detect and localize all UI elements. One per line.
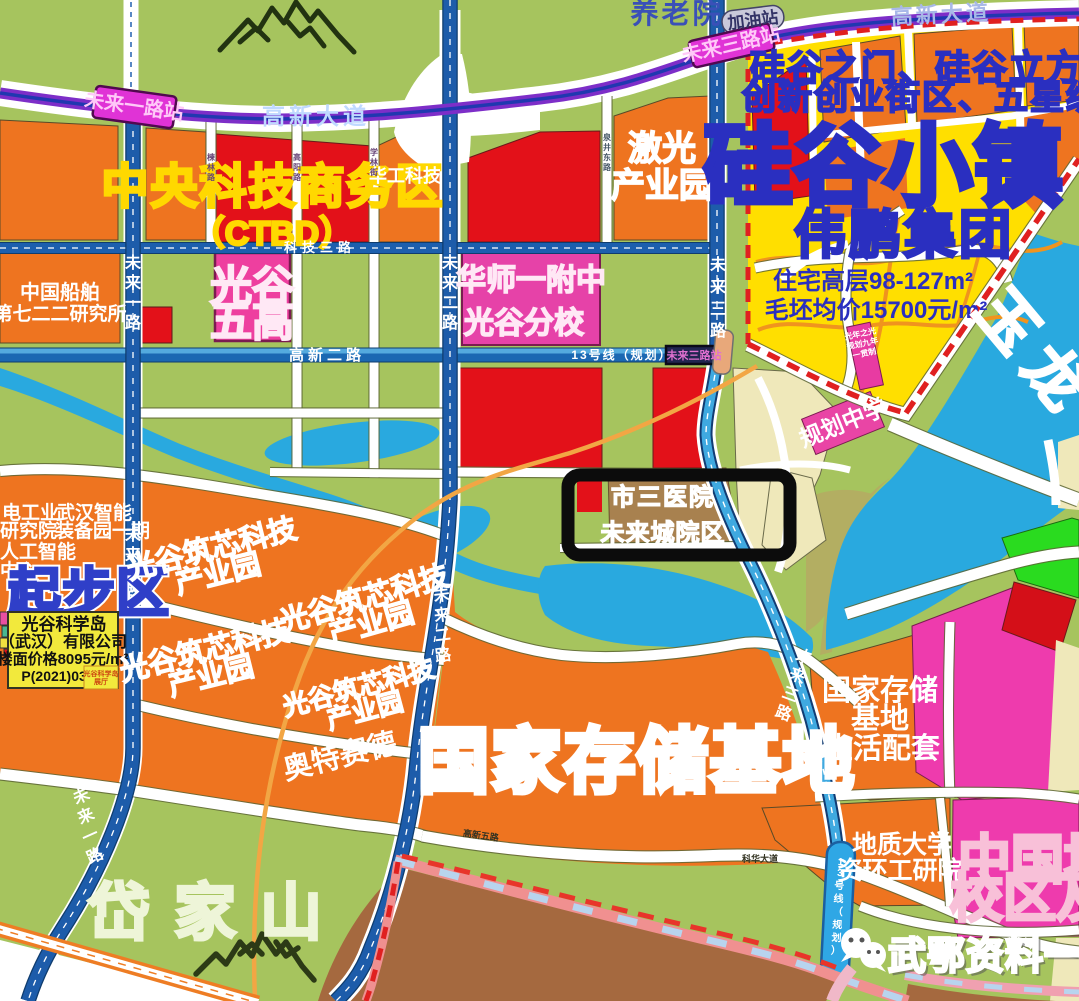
svg-text:市三医院: 市三医院 <box>611 483 715 511</box>
svg-text:路: 路 <box>603 162 612 172</box>
svg-text:高新大道: 高新大道 <box>890 0 991 30</box>
svg-text:阳: 阳 <box>293 163 301 172</box>
svg-text:东: 东 <box>603 152 611 162</box>
svg-text:高: 高 <box>293 152 301 162</box>
svg-text:校区及创: 校区及创 <box>950 869 1079 928</box>
svg-text:五高: 五高 <box>210 298 294 345</box>
svg-text:规: 规 <box>832 918 843 932</box>
svg-text:华工科技: 华工科技 <box>369 165 442 186</box>
svg-text:林: 林 <box>207 162 215 172</box>
svg-text:光谷科学岛: 光谷科学岛 <box>83 669 119 678</box>
svg-text:资环工研院: 资环工研院 <box>837 856 962 885</box>
svg-text:第七二二研究所: 第七二二研究所 <box>0 302 127 325</box>
svg-text:光谷科学岛: 光谷科学岛 <box>21 614 107 634</box>
svg-text:硅谷小镇: 硅谷小镇 <box>704 117 1064 216</box>
svg-text:学: 学 <box>370 147 378 157</box>
svg-text:来: 来 <box>441 273 459 292</box>
svg-text:未: 未 <box>441 253 458 272</box>
svg-text:科技三路: 科技三路 <box>284 240 356 255</box>
svg-text:科华大道: 科华大道 <box>742 853 778 864</box>
svg-text:井: 井 <box>603 142 611 152</box>
svg-text:创新创业街区、五星级酒店等: 创新创业街区、五星级酒店等 <box>741 79 1079 117</box>
svg-text:路: 路 <box>442 313 459 332</box>
svg-text:林: 林 <box>370 157 378 167</box>
svg-text:高新二路: 高新二路 <box>289 346 365 364</box>
svg-text:养老院: 养老院 <box>630 0 723 29</box>
svg-text:路: 路 <box>125 313 142 332</box>
svg-text:未来城院区: 未来城院区 <box>601 519 726 547</box>
svg-text:国家存储: 国家存储 <box>822 673 938 707</box>
svg-text:来: 来 <box>709 277 727 296</box>
svg-text:楼面价格8095元/m²: 楼面价格8095元/m² <box>0 650 128 668</box>
svg-text:路: 路 <box>293 172 302 182</box>
svg-text:未: 未 <box>709 255 726 274</box>
svg-text:毛坯均价15700元/m²: 毛坯均价15700元/m² <box>765 296 988 324</box>
svg-text:路: 路 <box>207 172 216 182</box>
svg-text:13号线（规划）: 13号线（规划） <box>571 347 672 362</box>
svg-text:（武汉）有限公司: （武汉）有限公司 <box>0 632 127 651</box>
svg-text:国家存储基地: 国家存储基地 <box>418 723 856 802</box>
svg-text:泉: 泉 <box>602 132 612 142</box>
svg-text:产业园: 产业园 <box>611 167 713 205</box>
svg-text:人工智能: 人工智能 <box>0 540 76 563</box>
svg-text:研究院: 研究院 <box>0 519 57 542</box>
svg-text:华师一附中: 华师一附中 <box>456 264 606 297</box>
svg-text:光谷分校: 光谷分校 <box>464 306 584 340</box>
svg-text:（: （ <box>833 905 844 919</box>
svg-text:二: 二 <box>434 627 452 646</box>
svg-text:街: 街 <box>369 167 378 177</box>
svg-text:中国船舶: 中国船舶 <box>20 280 100 304</box>
svg-text:）: ） <box>831 944 842 958</box>
svg-text:武鄂资料一览: 武鄂资料一览 <box>888 936 1079 978</box>
svg-text:高新大道: 高新大道 <box>262 103 370 129</box>
svg-text:激光: 激光 <box>628 130 696 168</box>
svg-text:岱家山: 岱家山 <box>87 879 346 948</box>
svg-text:住宅高层98-127m²: 住宅高层98-127m² <box>773 267 973 295</box>
svg-text:路: 路 <box>710 321 727 340</box>
svg-text:基地: 基地 <box>851 702 909 735</box>
svg-text:伟鹏集团: 伟鹏集团 <box>794 207 1014 265</box>
svg-text:二: 二 <box>442 295 458 312</box>
svg-text:三: 三 <box>710 301 726 318</box>
svg-text:未: 未 <box>124 253 141 272</box>
svg-text:来: 来 <box>432 604 452 625</box>
svg-text:生活配套: 生活配套 <box>824 732 940 765</box>
svg-text:未来三路站: 未来三路站 <box>666 348 722 362</box>
svg-text:展厅: 展厅 <box>93 677 108 686</box>
svg-text:来: 来 <box>124 273 142 292</box>
svg-text:一: 一 <box>125 295 141 312</box>
svg-text:楝: 楝 <box>207 152 215 162</box>
svg-text:线: 线 <box>833 892 844 906</box>
svg-text:地质大学: 地质大学 <box>852 830 952 859</box>
svg-text:划: 划 <box>831 931 842 945</box>
svg-text:装备园一期: 装备园一期 <box>54 519 150 542</box>
